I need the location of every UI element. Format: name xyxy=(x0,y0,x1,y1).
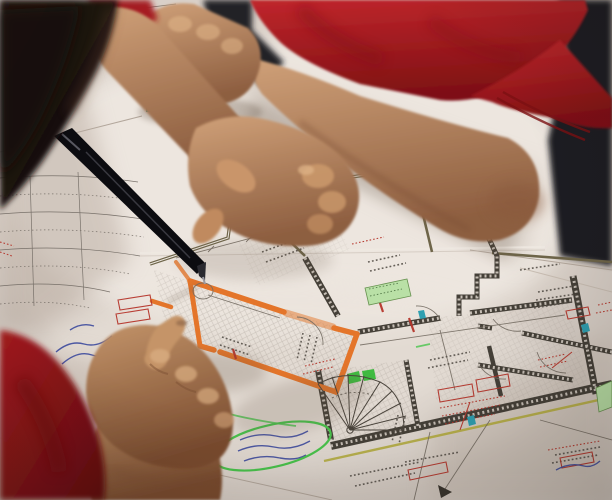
vignette-overlay xyxy=(0,0,612,500)
blueprint-review-photo: Blueprint review photo xyxy=(0,0,612,500)
photo-canvas: Blueprint review photo xyxy=(0,0,612,500)
